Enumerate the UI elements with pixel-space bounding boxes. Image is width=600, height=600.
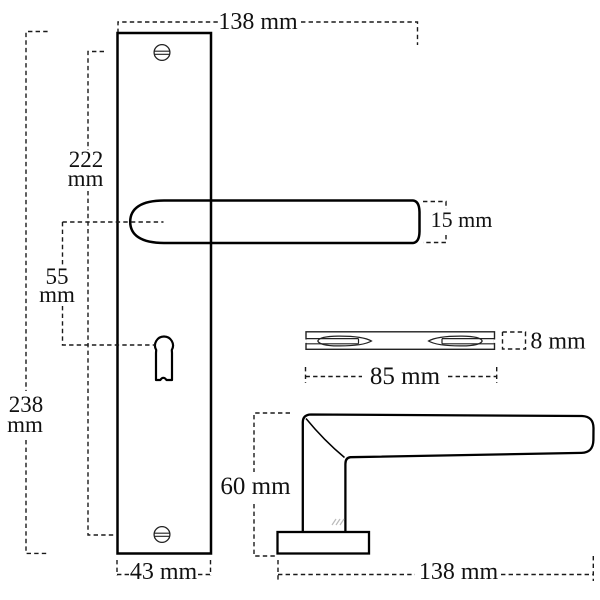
svg-text:mm: mm (68, 166, 104, 191)
svg-text:mm: mm (39, 282, 75, 307)
svg-text:mm: mm (7, 412, 43, 437)
svg-text:138 mm: 138 mm (218, 9, 298, 35)
svg-text:60 mm: 60 mm (220, 473, 291, 500)
svg-text:43 mm: 43 mm (130, 559, 198, 585)
svg-text:15 mm: 15 mm (431, 207, 493, 232)
svg-text:85 mm: 85 mm (370, 363, 441, 390)
svg-text:138 mm: 138 mm (419, 559, 499, 585)
svg-text:8 mm: 8 mm (530, 329, 586, 355)
